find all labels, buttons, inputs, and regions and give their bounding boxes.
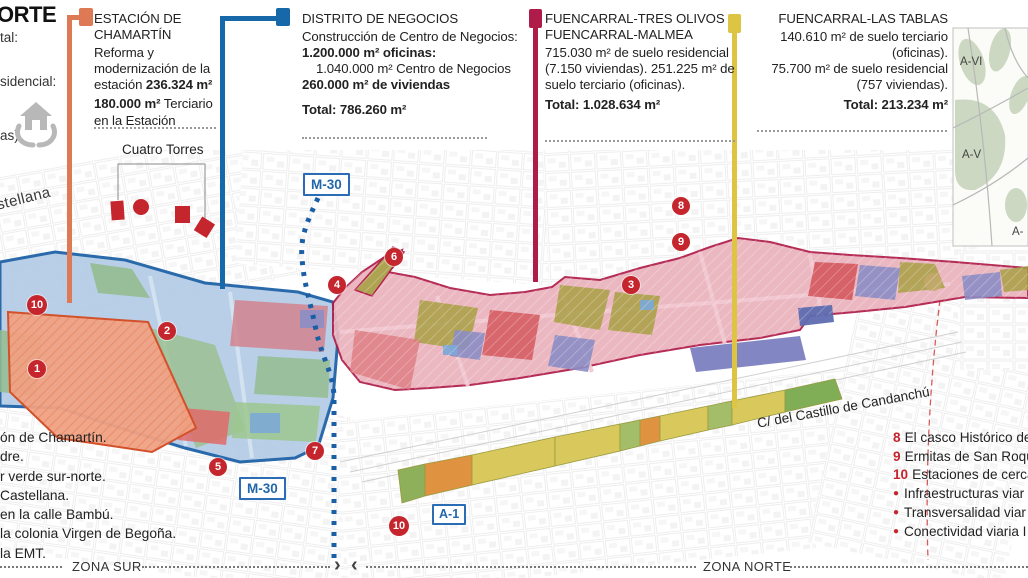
- legend-item-text: Conectividad viaria I: [904, 524, 1026, 539]
- legend-item: ●Transversalidad viar: [893, 504, 1028, 523]
- map-marker-6: 6: [385, 248, 403, 266]
- legend-bullet-icon: ●: [893, 526, 899, 537]
- cuatro-torres-label: Cuatro Torres: [122, 142, 204, 157]
- dotted-separator: [94, 127, 216, 129]
- arrow-left-icon: ‹: [351, 555, 358, 575]
- zona-sur-label: ZONA SUR: [72, 559, 142, 574]
- arrow-right-icon: ›: [334, 555, 341, 575]
- map-marker-9: 9: [672, 233, 690, 251]
- madrid-nuevo-norte-infographic: ORTE tal: sidencial: as) ESTACIÓN DE CHA…: [0, 0, 1028, 578]
- zona-dotted-line: [790, 566, 1028, 568]
- zona-norte-label: ZONA NORTE: [703, 559, 791, 574]
- total-value: Total: 786.260 m²: [302, 102, 530, 118]
- legend-item-text: Ermitas de San Roqu: [905, 449, 1028, 464]
- legend-list-left: ón de Chamartín. dre. r verde sur-norte.…: [0, 428, 176, 563]
- text-run: 1.040.000 m² Centro de Negocios: [302, 61, 530, 77]
- leader-cap-negocios: [276, 8, 290, 26]
- callout-body: Reforma y modernización de la estación 2…: [94, 45, 228, 93]
- legend-bullet-icon: ●: [893, 507, 899, 518]
- minimap-label-a5: A-V: [962, 149, 981, 161]
- map-marker-2: 2: [158, 322, 176, 340]
- legend-item-number: 8: [893, 430, 901, 445]
- callout-title: ESTACIÓN DE CHAMARTÍN: [94, 11, 228, 43]
- map-marker-10-west: 10: [27, 295, 47, 315]
- legend-item-text: El casco Histórico de: [905, 430, 1028, 445]
- zona-dotted-line: [142, 566, 330, 568]
- callout-title: FUENCARRAL-MALMEA: [545, 27, 743, 43]
- dotted-separator: [757, 130, 947, 132]
- leader-cap-chamartin: [79, 8, 93, 26]
- stat-value: 1.200.000 m² oficinas:: [302, 45, 530, 61]
- text-run: 75.700 m² de suelo residencial (757 vivi…: [752, 61, 948, 93]
- legend-item-text: Infraestructuras viar: [904, 486, 1024, 501]
- callout-title: FUENCARRAL-LAS TABLAS: [752, 11, 948, 27]
- map-marker-3: 3: [622, 276, 640, 294]
- text-run: 715.030 m² de suelo residencial (7.150 v…: [545, 45, 743, 93]
- total-value: Total: 1.028.634 m²: [545, 97, 743, 113]
- housing-icon: [14, 98, 58, 150]
- legend-item: 9Ermitas de San Roqu: [893, 448, 1028, 467]
- legend-item-fragment: en la calle Bambú.: [0, 505, 176, 524]
- summary-residential-fragment: sidencial:: [0, 74, 56, 89]
- map-marker-1: 1: [28, 360, 46, 378]
- zona-dotted-line: [0, 566, 62, 568]
- callout-body: 180.000 m² Terciario en la Estación: [94, 96, 228, 128]
- legend-bullet-icon: ●: [893, 488, 899, 499]
- minimap-label-a1-fragment: A-: [1012, 226, 1024, 238]
- legend-item-number: 9: [893, 449, 901, 464]
- legend-item: ●Infraestructuras viar: [893, 485, 1028, 504]
- legend-item: 8El casco Histórico de: [893, 429, 1028, 448]
- callout-title: DISTRITO DE NEGOCIOS: [302, 11, 530, 27]
- total-value: Total: 213.234 m²: [752, 97, 948, 113]
- leader-line-negocios-h: [220, 16, 278, 21]
- leader-line-tres-olivos: [533, 24, 538, 282]
- legend-item-fragment: ón de Chamartín.: [0, 428, 176, 447]
- m30-road-sign-upper: M-30: [303, 173, 350, 196]
- callout-title: FUENCARRAL-TRES OLIVOS: [545, 11, 743, 27]
- legend-item-fragment: Castellana.: [0, 486, 176, 505]
- m30-road-sign-lower: M-30: [239, 477, 286, 500]
- stat-value: 236.324 m²: [146, 77, 212, 92]
- summary-total-fragment: tal:: [0, 30, 18, 45]
- stat-value: 180.000 m²: [94, 96, 160, 111]
- stat-value: 260.000 m² de viviendas: [302, 77, 530, 93]
- legend-item: 10Estaciones de cercan: [893, 466, 1028, 485]
- map-marker-4: 4: [328, 276, 346, 294]
- legend-list-right: 8El casco Histórico de 9Ermitas de San R…: [893, 429, 1028, 542]
- callout-distrito-negocios: DISTRITO DE NEGOCIOS Construcción de Cen…: [302, 11, 530, 119]
- legend-item: ●Conectividad viaria I: [893, 523, 1028, 542]
- map-marker-8: 8: [672, 197, 690, 215]
- callout-las-tablas: FUENCARRAL-LAS TABLAS 140.610 m² de suel…: [752, 11, 948, 114]
- legend-item-number: 10: [893, 467, 908, 482]
- text-run: Construcción de Centro de Negocios:: [302, 29, 530, 45]
- leader-line-chamartin: [67, 15, 72, 303]
- legend-item-fragment: la colonia Virgen de Begoña.: [0, 524, 176, 543]
- minimap-label-a6: A-VI: [960, 56, 982, 68]
- page-title-fragment: ORTE: [0, 2, 56, 28]
- callout-tres-olivos-malmea: FUENCARRAL-TRES OLIVOS FUENCARRAL-MALMEA…: [545, 11, 743, 114]
- text-run: 140.610 m² de suelo terciario (oficinas)…: [752, 29, 948, 61]
- callout-estacion-chamartin: ESTACIÓN DE CHAMARTÍN Reforma y moderniz…: [94, 11, 228, 132]
- legend-item-fragment: r verde sur-norte.: [0, 467, 176, 486]
- legend-item-text: Estaciones de cercan: [912, 467, 1028, 482]
- dotted-separator: [545, 140, 735, 142]
- map-marker-7: 7: [306, 442, 324, 460]
- zona-dotted-line: [366, 566, 696, 568]
- a1-road-sign: A-1: [432, 504, 466, 525]
- legend-item-text: Transversalidad viar: [904, 505, 1026, 520]
- map-marker-10-south: 10: [389, 516, 409, 536]
- map-marker-5: 5: [209, 458, 227, 476]
- dotted-separator: [302, 137, 487, 139]
- legend-item-fragment: dre.: [0, 447, 176, 466]
